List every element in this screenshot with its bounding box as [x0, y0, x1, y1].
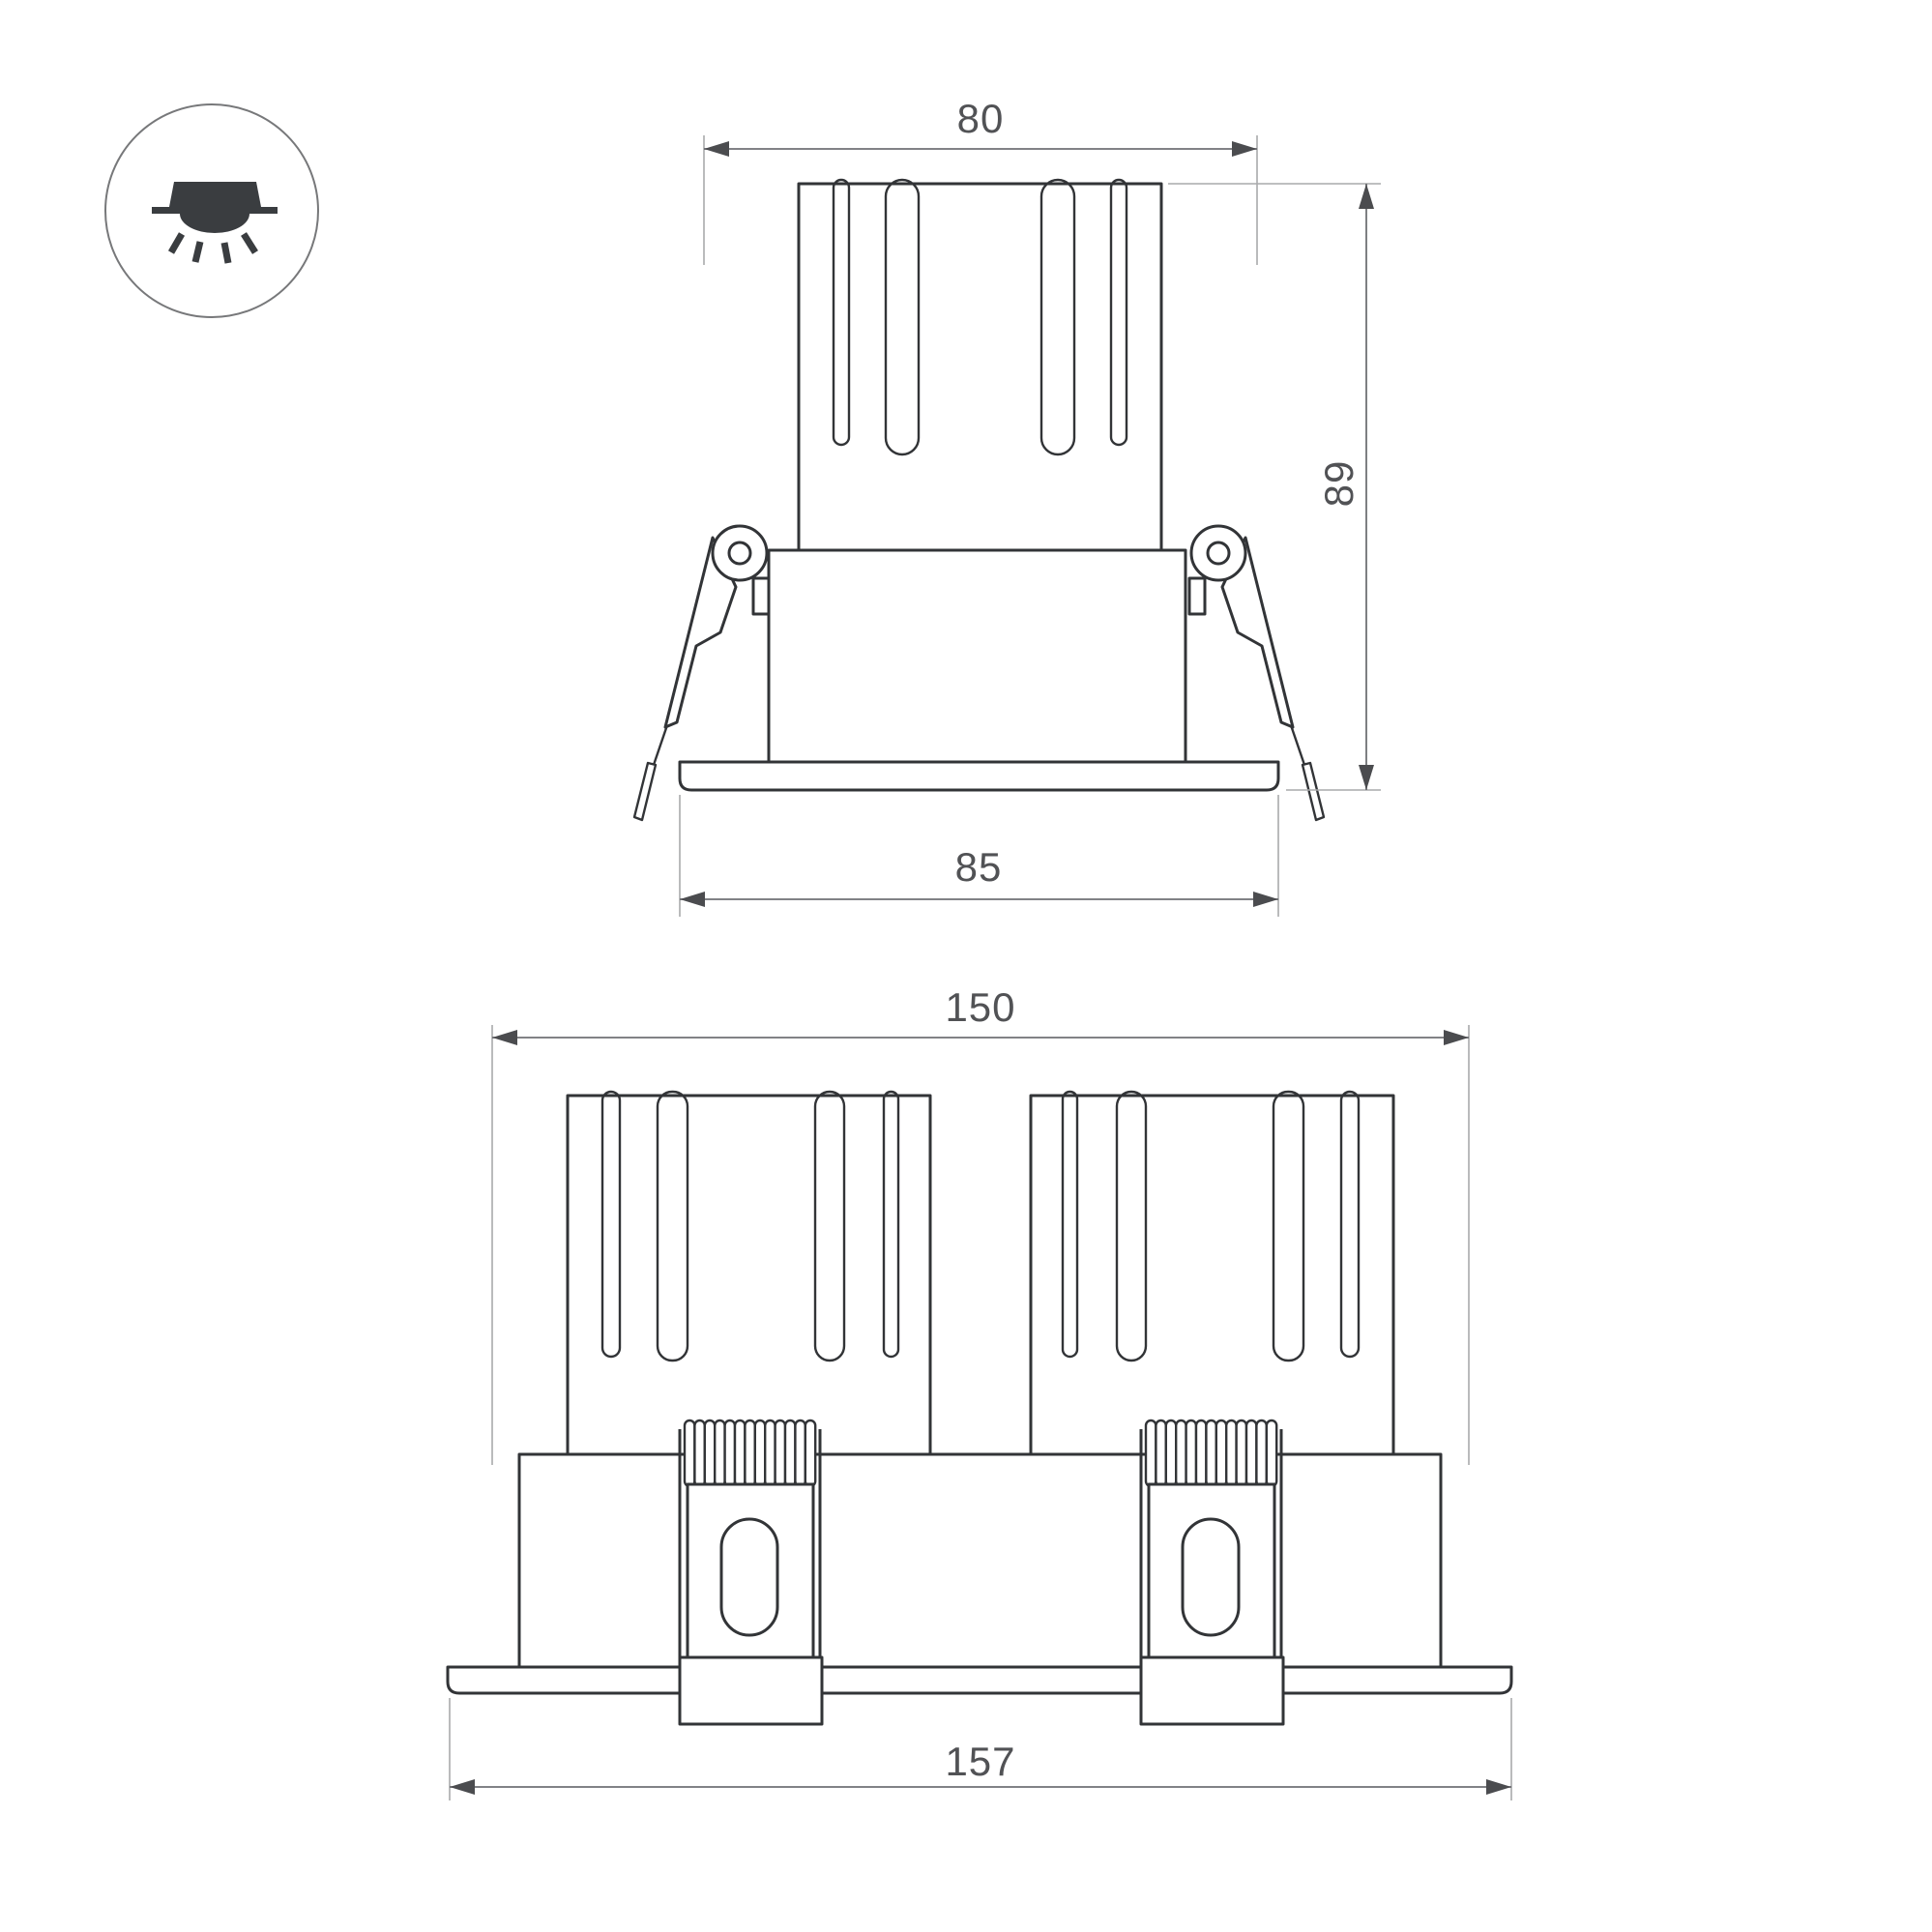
icon-flange-bar [152, 207, 278, 214]
heatsink-right [1031, 1092, 1393, 1454]
heatsink [799, 184, 1161, 550]
dim-80-label: 80 [957, 96, 1005, 141]
trim-flange [680, 762, 1278, 790]
icon-lamp-body [169, 182, 261, 207]
drawing-page: 80 89 85 [0, 0, 1932, 1932]
view-front-single: 80 89 85 [634, 96, 1381, 917]
dim-85: 85 [680, 795, 1278, 917]
clip-stop-tab [753, 578, 769, 614]
clamp-foot-block [680, 1657, 822, 1724]
clamp-threaded-rod [685, 1420, 815, 1486]
icon-light-rays [171, 234, 255, 263]
view-front-double: 150 157 [448, 984, 1511, 1800]
clip-spring-tip [634, 763, 656, 820]
screw-clamp-left [680, 1420, 822, 1724]
spring-clip-right [1189, 526, 1324, 820]
downlight-icon [105, 104, 318, 317]
dim-157-label: 157 [945, 1739, 1015, 1784]
spring-clip-left [634, 526, 769, 820]
heatsink-fins [834, 180, 1127, 454]
dim-85-label: 85 [955, 844, 1003, 890]
dim-150: 150 [492, 984, 1469, 1465]
trim-flange-double [448, 1667, 1511, 1693]
heatsink-left [568, 1096, 930, 1454]
housing-body-double [519, 1454, 1441, 1667]
heatsink-left-fins [602, 1092, 898, 1361]
dim-150-label: 150 [945, 984, 1015, 1030]
dim-157: 157 [450, 1698, 1511, 1800]
clip-spring-wire [654, 725, 667, 765]
dim-89-label: 89 [1316, 460, 1361, 508]
housing-body [769, 550, 1186, 762]
clip-pivot-hole [729, 542, 750, 564]
dim-80: 80 [704, 96, 1257, 265]
clamp-slot [721, 1519, 777, 1635]
icon-light-dome [180, 214, 249, 233]
technical-drawing-canvas: 80 89 85 [0, 0, 1932, 1932]
screw-clamp-right [1141, 1420, 1283, 1724]
